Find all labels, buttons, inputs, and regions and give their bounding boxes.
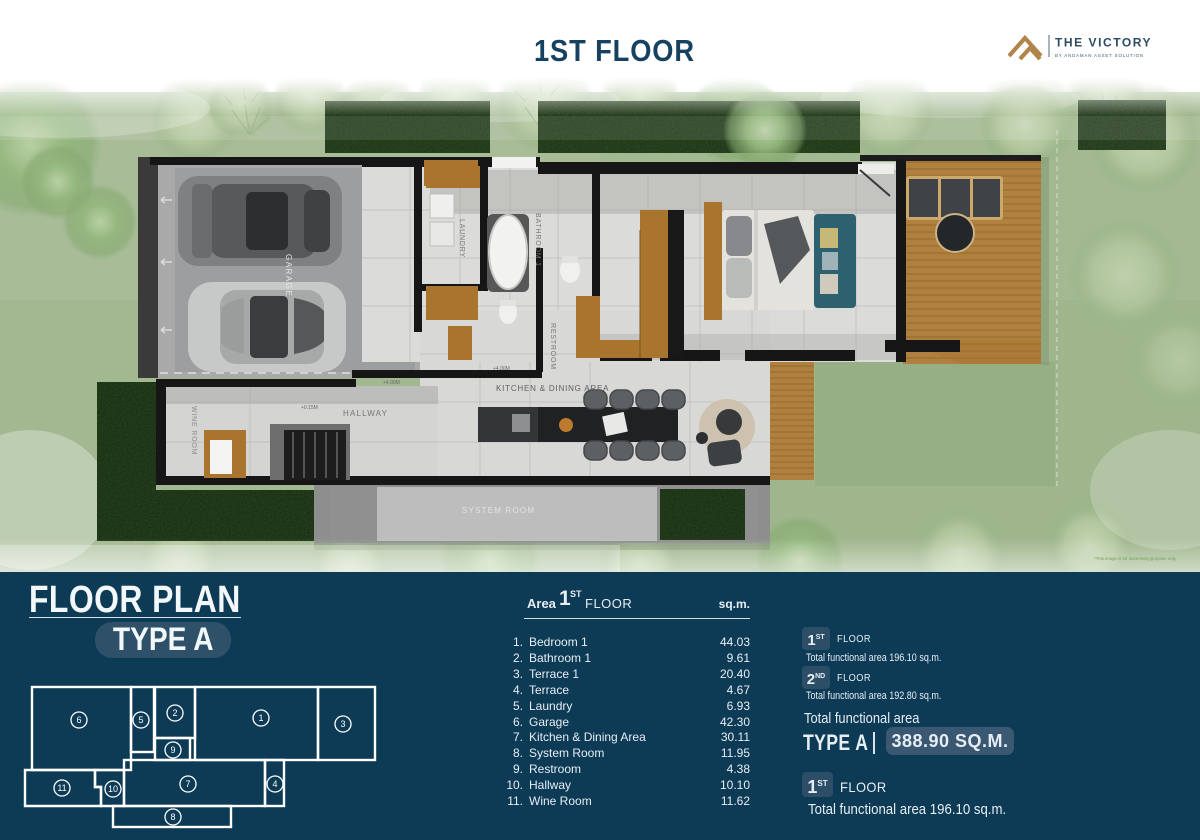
svg-text:+0.15M: +0.15M <box>301 405 318 411</box>
svg-text:11: 11 <box>57 783 66 793</box>
svg-text:9: 9 <box>170 745 175 755</box>
svg-text:SYSTEM ROOM: SYSTEM ROOM <box>462 506 535 515</box>
svg-text:+4.00M: +4.00M <box>493 366 510 372</box>
svg-text:10: 10 <box>108 784 118 794</box>
svg-text:3: 3 <box>340 719 345 729</box>
svg-text:5: 5 <box>138 715 143 725</box>
svg-text:4: 4 <box>272 779 277 789</box>
svg-text:BATHROOM 1: BATHROOM 1 <box>534 213 541 267</box>
svg-text:LAUNDRY: LAUNDRY <box>458 219 465 258</box>
svg-text:2: 2 <box>172 708 177 718</box>
svg-text:WINE ROOM: WINE ROOM <box>190 406 197 455</box>
svg-text:THE VICTORY: THE VICTORY <box>1055 36 1152 50</box>
svg-text:1: 1 <box>258 713 263 723</box>
svg-text:8: 8 <box>170 812 175 822</box>
svg-text:KITCHEN & DINING AREA: KITCHEN & DINING AREA <box>496 384 609 393</box>
svg-text:7: 7 <box>185 779 190 789</box>
svg-text:BY ANDAMAN ASSET SOLUTION: BY ANDAMAN ASSET SOLUTION <box>1055 53 1144 58</box>
svg-text:+4.00M: +4.00M <box>383 380 400 386</box>
svg-text:RESTROOM: RESTROOM <box>549 323 556 370</box>
svg-text:6: 6 <box>76 715 81 725</box>
svg-text:HALLWAY: HALLWAY <box>343 409 388 418</box>
svg-text:GARAGE: GARAGE <box>284 254 293 297</box>
